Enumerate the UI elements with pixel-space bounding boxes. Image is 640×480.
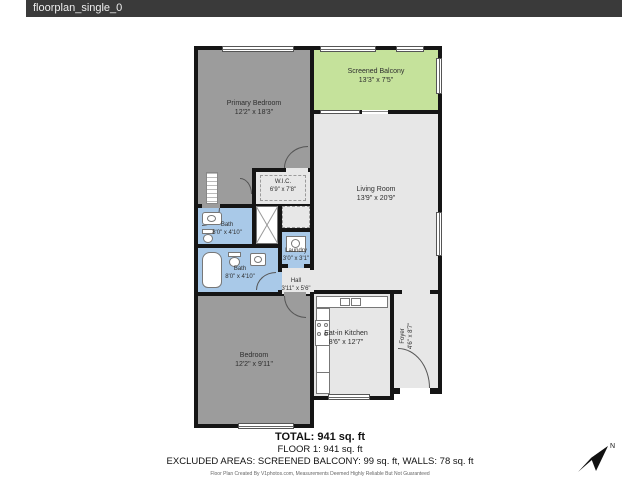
floorplan-image: Primary Bedroom 12'2" x 18'3" Screened B… (194, 46, 442, 430)
sink-bowl-icon (207, 215, 216, 222)
north-label: N (610, 443, 615, 450)
shower-icon (256, 206, 278, 244)
wic-lower-shelf (282, 206, 310, 228)
label-foyer: Foyer 4'6" x 8'7" (400, 323, 416, 349)
excluded-areas-text: EXCLUDED AREAS: SCREENED BALCONY: 99 sq.… (0, 456, 640, 467)
label-wic: W.I.C. 6'9" x 7'8" (270, 179, 296, 195)
label-primary-bedroom: Primary Bedroom 12'2" x 18'3" (227, 99, 281, 117)
north-arrow-icon: N (574, 440, 620, 476)
fridge-icon (316, 372, 330, 394)
window-balcony-top-1 (320, 46, 376, 52)
window-living-top (320, 110, 360, 114)
sink-bowl-icon (254, 256, 262, 263)
label-living-room: Living Room 13'9" x 20'9" (357, 185, 396, 203)
opening-hall-living (310, 270, 314, 292)
floor-area-text: FLOOR 1: 941 sq. ft (0, 444, 640, 455)
bathtub-icon (202, 252, 222, 288)
window-balcony-right (436, 58, 442, 94)
window-primary-top (222, 46, 294, 52)
window-kitchen-bottom (328, 394, 370, 400)
label-bath-upper: Bath 8'0" x 4'10" (212, 222, 242, 238)
window-balcony-top-2 (396, 46, 424, 52)
label-hall: Hall 3'11" x 5'6" (281, 278, 310, 294)
label-bedroom: Bedroom 12'2" x 9'11" (235, 351, 273, 369)
opening-primary-wic (286, 168, 308, 172)
summary-block: TOTAL: 941 sq. ft FLOOR 1: 941 sq. ft EX… (0, 431, 640, 477)
label-laundry: Laundry 3'0" x 3'1" (283, 248, 309, 264)
window-living-right (436, 212, 442, 256)
opening-foyer-living (402, 290, 430, 294)
opening-laundry (288, 264, 304, 268)
screenshot-root: { "window": { "title": "floorplan_single… (0, 0, 640, 480)
disclaimer-text: Floor Plan Created By V1photos.com, Meas… (0, 471, 640, 477)
kitchen-sink-icon (340, 298, 350, 306)
label-screened-balcony: Screened Balcony 13'3" x 7'5" (348, 67, 405, 85)
entry-door-gap (400, 388, 430, 394)
balcony-slider-door (362, 111, 388, 112)
closet-shelving (206, 172, 218, 204)
total-area-text: TOTAL: 941 sq. ft (0, 431, 640, 443)
window-title: floorplan_single_0 (33, 2, 122, 14)
washer-drum-icon (291, 239, 300, 248)
window-bedroom-bottom (238, 423, 294, 429)
burner-icon (324, 323, 328, 327)
label-eat-in-kitchen: Eat-in Kitchen 8'6" x 12'7" (324, 329, 368, 347)
label-bath-lower: Bath 8'0" x 4'10" (225, 266, 255, 282)
title-bar: floorplan_single_0 (26, 0, 622, 17)
burner-icon (317, 323, 321, 327)
burner-icon (317, 332, 321, 336)
kitchen-sink-icon (351, 298, 361, 306)
